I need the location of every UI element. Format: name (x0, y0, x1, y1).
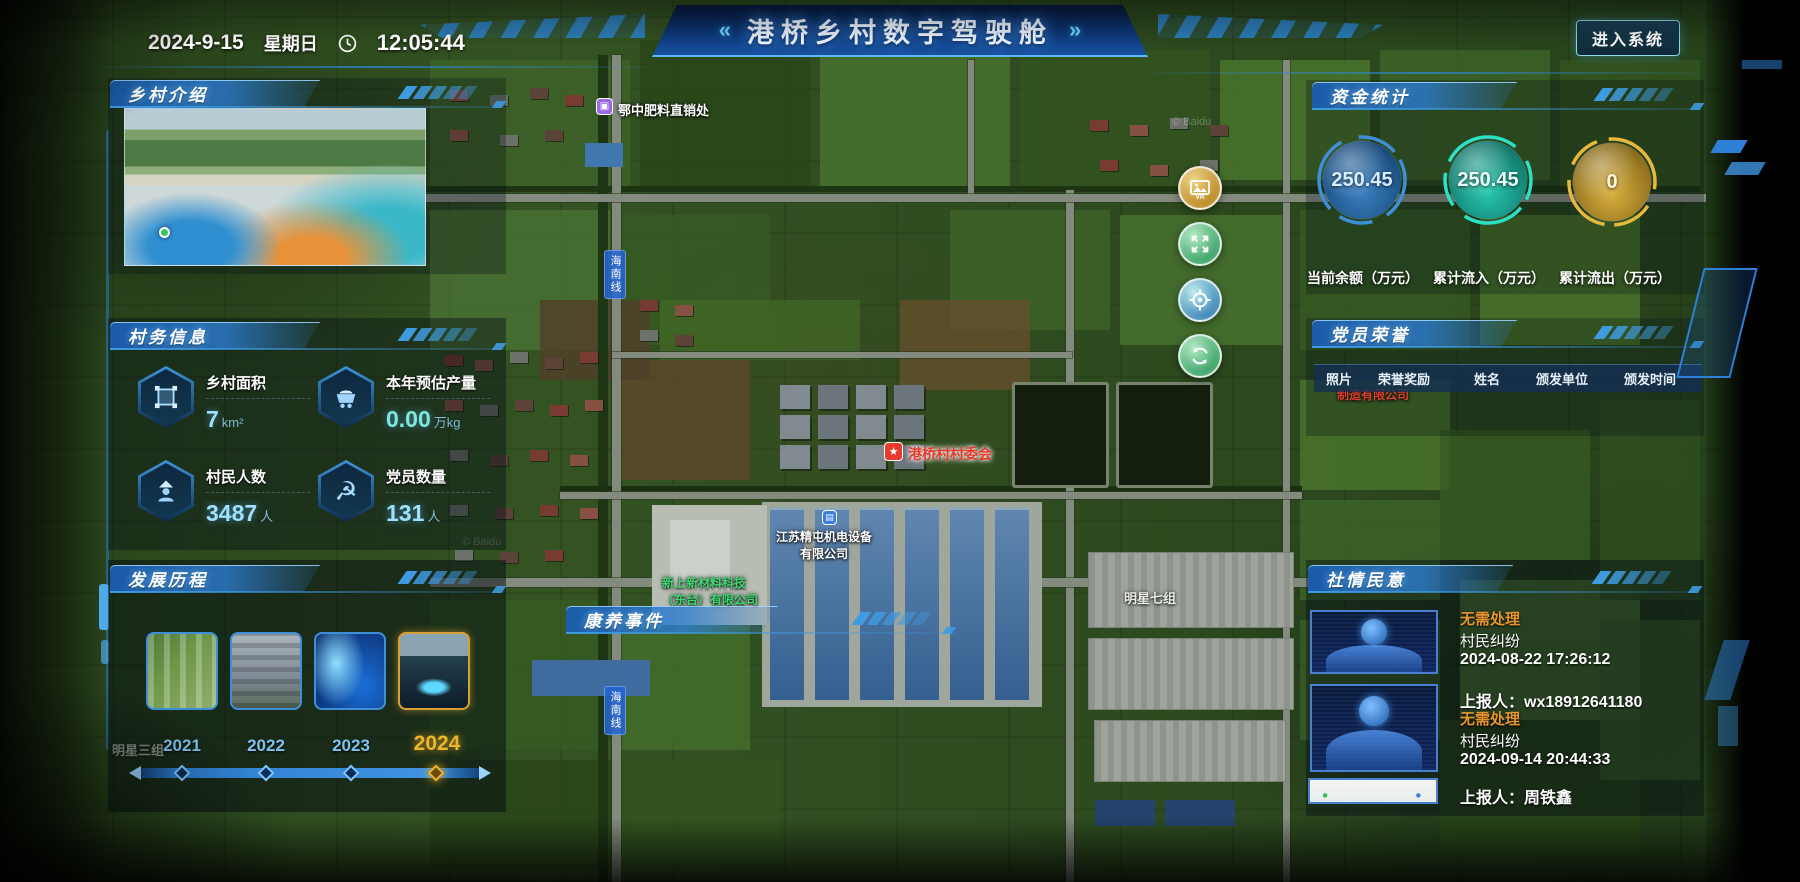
stat-estimated-yield: 本年预估产量 0.00万kg (318, 364, 490, 450)
factory-building (995, 508, 1029, 700)
party-emblem-icon: ☭ (321, 463, 371, 519)
panel-header-affairs: 村务信息 (110, 322, 504, 352)
stat-village-area: 乡村面积 7km² (138, 364, 310, 450)
villa-building (780, 385, 810, 409)
history-title: 发展历程 (110, 566, 208, 591)
warehouse (1088, 552, 1294, 628)
svg-text:VR: VR (1195, 194, 1204, 200)
house (545, 130, 563, 141)
road (968, 60, 974, 198)
house (565, 95, 583, 106)
warehouse (1088, 638, 1294, 710)
house (530, 88, 548, 99)
blue-roof-building (585, 143, 623, 167)
field-patch (1440, 430, 1590, 560)
sentiment-1-time: 2024-08-22 17:26:12 (1460, 651, 1610, 669)
inflow-label: 累计流入（万元） (1426, 268, 1552, 288)
dashboard: © Baidu © Baidu ▣ 鄂中肥料直销处 ★ 港桥村村委会 ▤ 江苏精… (0, 0, 1800, 882)
sentiment-1-type: 村民纠纷 (1460, 630, 1520, 651)
villa-building (818, 385, 848, 409)
panel-header-history: 发展历程 (110, 565, 504, 595)
area-value: 7 (206, 406, 219, 432)
field-patch (660, 300, 860, 360)
hologram-person-icon (1361, 619, 1387, 645)
intro-title: 乡村介绍 (110, 81, 208, 106)
house (545, 358, 563, 369)
header-hatch (1598, 326, 1669, 339)
vr-panorama-button[interactable]: VR (1178, 166, 1222, 210)
house (570, 455, 588, 466)
yield-value: 0.00 (386, 406, 431, 432)
villa-building (856, 385, 886, 409)
fertilizer-shop-pin-icon[interactable]: ▣ (596, 98, 613, 115)
road-label-hainan: 海南线 (604, 686, 626, 735)
year-2022[interactable]: 2022 (231, 736, 301, 756)
fullscreen-expand-button[interactable] (1178, 222, 1222, 266)
panel-header-sentiment: 社情民意 (1308, 565, 1700, 595)
frame-accent (1718, 706, 1738, 746)
house (580, 352, 598, 363)
year-2024[interactable]: 2024 (402, 732, 472, 756)
col-photo: 照片 (1314, 369, 1366, 388)
weekday-text: 星期日 (264, 30, 318, 56)
year-2021[interactable]: 2021 (147, 736, 217, 756)
map-label-fertilizer-shop: 鄂中肥料直销处 (618, 100, 709, 119)
frame-accent (1710, 140, 1748, 153)
house (640, 300, 658, 311)
sentiment-2-status: 无需处理 (1460, 708, 1520, 729)
house (545, 550, 563, 561)
road-label-hainan: 海南线 (604, 250, 626, 299)
header-hatch (1598, 88, 1669, 101)
tree-line (598, 55, 608, 882)
warehouse (1165, 800, 1235, 826)
panel-header-funds: 资金统计 (1312, 82, 1702, 112)
map-watermark: © Baidu (1172, 116, 1211, 128)
field-patch (620, 360, 750, 480)
gauge-current-balance: 250.45 (1316, 134, 1408, 226)
sentiment-2-type: 村民纠纷 (1460, 730, 1520, 751)
expand-arrows-icon (1189, 233, 1211, 255)
outflow-value: 0 (1566, 136, 1658, 228)
field-patch (820, 55, 1010, 190)
header-hatch (1596, 571, 1667, 584)
col-name: 姓名 (1462, 369, 1524, 388)
villa-building (780, 415, 810, 439)
hologram-person-icon (1359, 696, 1389, 726)
house (675, 335, 693, 346)
house (1090, 120, 1108, 131)
field-patch (620, 760, 780, 870)
sentiment-thumb-2[interactable] (1310, 684, 1438, 772)
sentiment-2-reporter: 上报人：周铁鑫 (1460, 784, 1572, 808)
villa-building (856, 445, 886, 469)
villager-count-value: 3487 (206, 500, 257, 526)
header-hatch (402, 571, 473, 584)
gauge-total-inflow: 250.45 (1442, 134, 1534, 226)
funds-title: 资金统计 (1312, 83, 1410, 108)
house (540, 505, 558, 516)
inflow-value: 250.45 (1442, 134, 1534, 226)
header-hatch (856, 612, 927, 625)
header-hatch (402, 328, 473, 341)
health-events-title: 康养事件 (566, 607, 664, 632)
pond (1012, 382, 1109, 488)
field-patch (540, 300, 650, 380)
road (1283, 60, 1290, 882)
balance-value: 250.45 (1316, 134, 1408, 226)
villa-building (894, 415, 924, 439)
harvest-cart-icon (321, 369, 371, 425)
warehouse (1095, 800, 1155, 826)
title-left-ornament: « (719, 17, 731, 43)
field-patch (950, 210, 1110, 330)
page-title: 港桥乡村数字驾驶舱 (747, 11, 1053, 50)
road (1066, 190, 1074, 882)
villa-building (818, 415, 848, 439)
history-thumb-2024[interactable] (398, 632, 470, 710)
house (510, 352, 528, 363)
warehouse (1094, 720, 1286, 782)
stat-villager-count: 村民人数 3487人 (138, 458, 310, 544)
sentiment-2-time: 2024-09-14 20:44:33 (1460, 751, 1610, 769)
locate-button[interactable] (1178, 278, 1222, 322)
sentiment-title: 社情民意 (1308, 566, 1406, 591)
house (580, 508, 598, 519)
stat-party-member-count: ☭ 党员数量 131人 (318, 458, 490, 544)
villa-building (818, 445, 848, 469)
house (515, 400, 533, 411)
factory-building (905, 508, 939, 700)
house (1100, 160, 1118, 171)
panel-header-intro: 乡村介绍 (110, 80, 504, 110)
house (1210, 125, 1228, 136)
panel-header-health-events: 康养事件 (566, 606, 954, 636)
villa-building (894, 385, 924, 409)
house (530, 450, 548, 461)
page-title-banner: « 港桥乡村数字驾驶舱 » (652, 5, 1148, 57)
party-count-value: 131 (386, 500, 424, 526)
house (585, 400, 603, 411)
datetime-display: 2024-9-15 星期日 12:05:44 (148, 30, 465, 56)
house (1130, 125, 1148, 136)
sentiment-thumb-3[interactable] (1308, 778, 1438, 804)
left-frame (0, 0, 112, 882)
sentiment-thumb-1[interactable] (1310, 610, 1438, 674)
map-label-company-1: 江苏精屯机电设备 有限公司 (776, 528, 872, 562)
target-icon (1188, 288, 1212, 312)
map-label-village-committee: 港桥村村委会 (908, 444, 992, 464)
affairs-title: 村务信息 (110, 323, 208, 348)
field-patch (900, 300, 1030, 390)
villa-building (780, 445, 810, 469)
col-issuer: 颁发单位 (1524, 369, 1612, 388)
villagers-icon (141, 463, 191, 519)
village-photo[interactable] (124, 108, 426, 266)
road (560, 492, 1302, 499)
tree-line (560, 486, 1302, 491)
header-hatch (402, 86, 473, 99)
villa-building (856, 415, 886, 439)
enter-system-button[interactable]: 进入系统 (1576, 20, 1680, 56)
field-patch (620, 620, 750, 750)
outflow-label: 累计流出（万元） (1552, 268, 1678, 288)
refresh-button[interactable] (1178, 334, 1222, 378)
road (612, 55, 621, 882)
company-pin-icon[interactable]: ▤ (822, 510, 837, 525)
house (550, 405, 568, 416)
frame-accent (1742, 60, 1782, 69)
panel-header-honors: 党员荣誉 (1312, 320, 1702, 350)
time-text: 12:05:44 (377, 30, 465, 56)
history-thumb-2023[interactable] (314, 632, 386, 710)
sentiment-1-status: 无需处理 (1460, 608, 1520, 629)
vr-image-icon: VR (1188, 176, 1212, 200)
date-text: 2024-9-15 (148, 31, 244, 55)
house (640, 330, 658, 341)
map-label-company-2: 新上新材料科技 （东台）有限公司 (662, 574, 758, 608)
frame-accent (1724, 162, 1766, 175)
honors-title: 党员荣誉 (1312, 321, 1410, 346)
house (1150, 165, 1168, 176)
history-thumb-2022[interactable] (230, 632, 302, 710)
area-icon (141, 369, 191, 425)
refresh-arrows-icon (1189, 345, 1211, 367)
photo-location-pin-icon (159, 227, 170, 238)
clock-icon (338, 34, 357, 53)
year-2023[interactable]: 2023 (316, 736, 386, 756)
pond (1116, 382, 1213, 488)
title-right-ornament: » (1069, 17, 1081, 43)
right-frame (1706, 0, 1800, 882)
factory-building (532, 660, 650, 696)
history-thumb-2021[interactable] (146, 632, 218, 710)
field-patch (620, 215, 770, 345)
col-award: 荣誉奖励 (1366, 369, 1462, 388)
top-frame-line (1148, 72, 1700, 74)
frame-accent (1704, 640, 1749, 700)
balance-label: 当前余额（万元） (1300, 268, 1426, 288)
gauge-total-outflow: 0 (1566, 136, 1658, 228)
top-frame-line (96, 66, 652, 68)
house (675, 305, 693, 316)
village-committee-pin-icon[interactable]: ★ (884, 442, 903, 461)
road (612, 352, 1072, 358)
honors-table-header: 照片 荣誉奖励 姓名 颁发单位 颁发时间 (1314, 364, 1702, 392)
map-label-mingxing-7: 明星七组 (1124, 588, 1176, 607)
factory-building (950, 508, 984, 700)
road (430, 578, 1310, 587)
